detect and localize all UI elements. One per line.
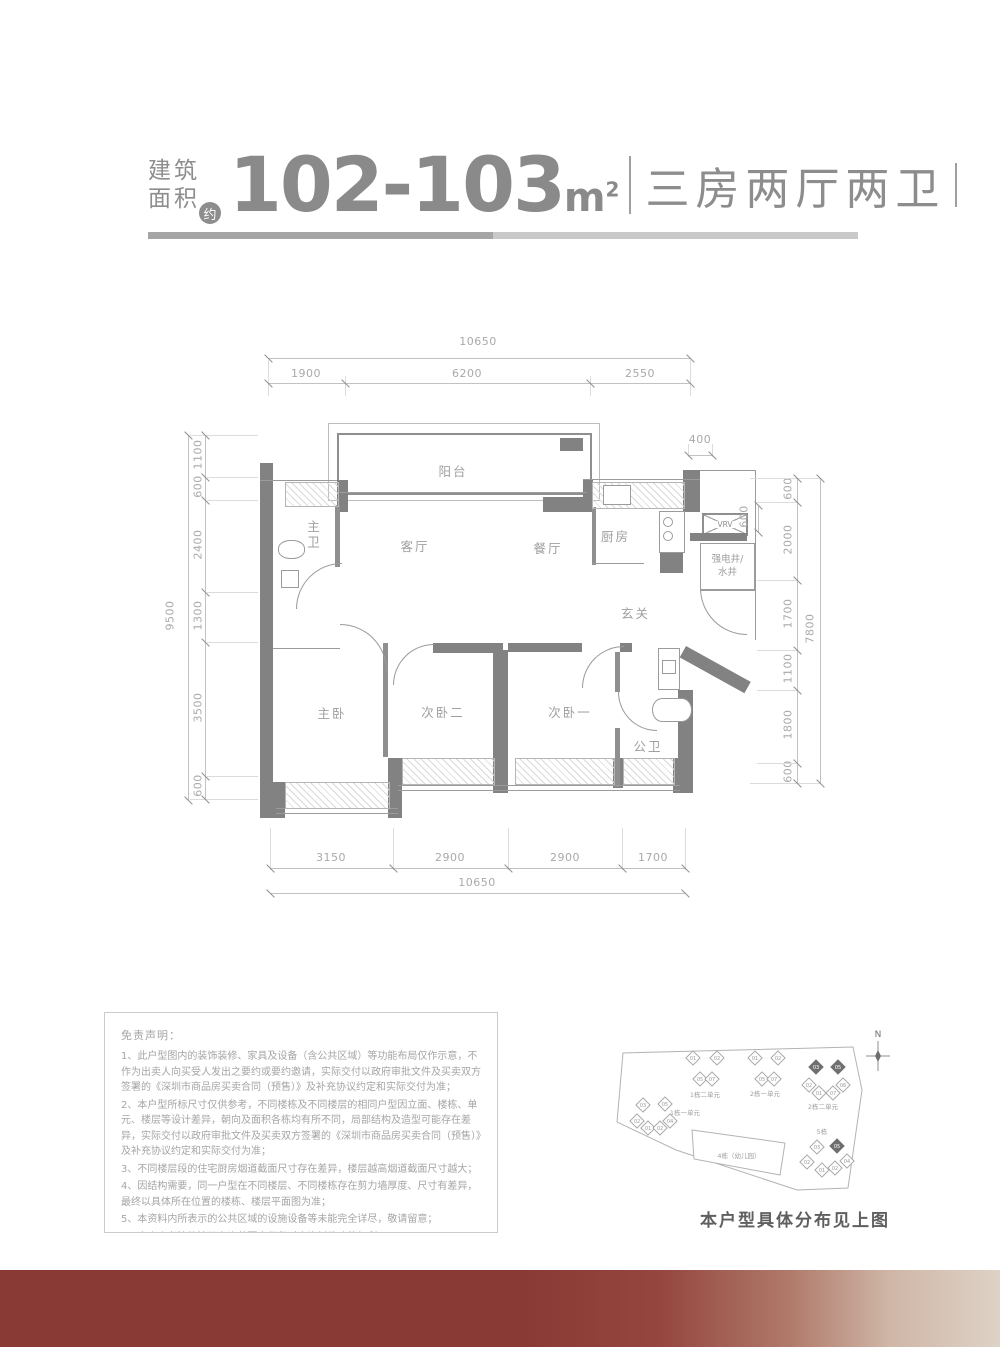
dimension-line [188,435,189,800]
extension-line [207,592,258,593]
window-hatch [623,758,675,785]
extension-line [207,642,258,643]
site-unit-number: 01 [819,1168,825,1174]
disclaimer-title: 免责声明： [121,1027,485,1043]
area-label-line1: 建筑 [148,157,200,185]
extension-line [393,828,394,870]
area-value: 102-103m2 [229,147,619,223]
interior-wall [335,505,340,567]
dim-top-1: 1900 [276,367,336,380]
site-unit-number: 04 [667,1119,673,1125]
dim-left-3: 2400 [192,515,205,575]
wall-line [340,492,587,493]
stove-burner [663,531,673,541]
disclaimer-box: 免责声明： 1、此户型图内的装饰装修、家具及设备（含公共区域）等功能布局仅作示意… [104,1012,498,1233]
north-label: N [875,1030,882,1040]
dim-right-total: 7800 [804,599,817,659]
site-unit-number: 07 [709,1077,715,1083]
bath-sink-basin [662,660,676,674]
approx-badge: 约 [199,202,221,224]
disclaimer-items: 1、此户型图内的装饰装修、家具及设备（含公共区域）等功能布局仅作示意，不作为出卖… [121,1049,485,1233]
dimension-line [268,358,690,359]
site-unit-number: 05 [662,1102,668,1108]
dimension-line [268,383,690,384]
extension-line [750,783,820,784]
site-unit-number: 05 [835,1065,841,1071]
site-unit-number: 01 [645,1126,651,1132]
extension-line [270,828,271,870]
window-hatch [402,758,495,785]
dim-bottom-4: 1700 [623,851,683,864]
dim-400: 400 [676,433,724,446]
site-plan-caption: 本户型具体分布见上图 [655,1206,935,1231]
wall [260,463,273,818]
dim-top-2: 6200 [437,367,497,380]
utility-shaft: 强电井/ 水井 [700,543,755,590]
wall-line [276,813,398,814]
site-unit-number: 05 [834,1144,840,1150]
room-label-bedroom2: 次卧二 [400,702,486,721]
site-unit-number: 07 [830,1091,836,1097]
dim-left-total: 9500 [164,586,177,646]
interior-wall [592,507,596,565]
wall-line [592,563,644,564]
interior-wall [615,728,620,787]
extension-line [690,360,691,396]
site-unit-number: 03 [813,1065,819,1071]
extension-line [757,690,797,691]
site-unit-number: 02 [775,1056,781,1062]
site-unit-number: 01 [816,1091,822,1097]
dim-top-total: 10650 [448,335,508,348]
extension-line [190,799,258,800]
disclaimer-item: 5、本资料内所表示的公共区域的设施设备等未能完全详尽，敬请留意； [121,1212,485,1228]
room-label-master-bed: 主卧 [292,703,372,722]
extension-line [757,763,797,764]
dim-bottom-2: 2900 [420,851,480,864]
extension-line [750,478,820,479]
building-4-label: 4栋（幼儿园） [717,1151,760,1160]
door-arc [700,588,747,635]
area-unit-m: m [564,175,606,221]
door-arc [582,646,624,688]
stove-burner [663,517,673,527]
site-unit-number: 02 [634,1119,640,1125]
dim-right-6: 600 [782,742,795,802]
site-plan: 4栋（幼儿园） N 010205071栋二单元010205072栋一单元0305… [615,1025,915,1215]
window-hatch [515,758,615,785]
dim-right-2: 2000 [782,510,795,570]
dim-bottom-total: 10650 [447,876,507,889]
wall-line [583,479,700,480]
dim-bottom-1: 3150 [301,851,361,864]
dimension-line [758,505,759,532]
site-cluster-label: 5栋 [817,1127,828,1136]
dim-left-2: 600 [192,457,205,517]
disclaimer-item: 6、出卖人在法律法规允许范围内保留对本资料修改的权利； [121,1230,485,1234]
wall-line [755,470,756,640]
site-cluster-label: 2栋二单元 [808,1102,839,1111]
bottom-accent-bar [0,1270,1000,1347]
disclaimer-item: 4、因结构需要，同一户型在不同楼层、不同楼栋存在剪力墙厚度、尺寸有差异，最终以具… [121,1179,485,1210]
dim-right-3: 1700 [782,584,795,644]
door-arc [296,563,342,609]
north-arrow: N [866,1030,890,1071]
room-label-bedroom1: 次卧一 [527,702,613,721]
dimension-line [688,455,712,456]
extension-line [207,477,258,478]
site-unit-number: 03 [814,1145,820,1151]
extension-line [268,360,269,396]
site-unit-number: 06 [840,1083,846,1089]
area-number: 102-103 [229,140,564,229]
floor-plan: VRV 强电井/ 水井 阳台 主卫 客厅 餐厅 厨房 玄关 主卧 次卧二 次卧一… [150,330,880,930]
room-label-master-bath: 主卫 [303,520,322,551]
dim-bottom-3: 2900 [535,851,595,864]
extension-line [757,650,797,651]
wall [560,438,583,451]
site-cluster-label: 1栋一单元 [670,1108,701,1117]
area-unit: m2 [564,175,620,221]
site-unit-number: 05 [759,1077,765,1083]
room-label-balcony: 阳台 [413,461,493,480]
site-unit-number: 03 [640,1103,646,1109]
door-arc [340,624,387,671]
extension-line [190,435,258,436]
disclaimer-item: 1、此户型图内的装饰装修、家具及设备（含公共区域）等功能布局仅作示意，不作为出卖… [121,1049,485,1096]
dimension-line [797,478,798,783]
window-hatch [285,782,390,809]
site-unit-number: 02 [714,1056,720,1062]
wall-line [273,648,340,649]
extension-line [622,828,623,870]
site-unit-number: 07 [771,1077,777,1083]
site-cluster-label: 1栋二单元 [690,1090,721,1099]
bath-sink [281,570,299,588]
utility-shaft-label-1: 强电井/ [701,553,754,566]
site-unit-number: 05 [697,1077,703,1083]
dim-top-3: 2550 [610,367,670,380]
header-separator-bar [629,156,631,214]
header-end-bar [955,163,957,207]
wall [683,470,700,512]
toilet [278,540,305,559]
extension-line [207,776,258,777]
wall [673,758,693,793]
layout-type: 三房两厅两卫 [645,153,945,217]
dimension-line [270,893,685,894]
disclaimer-item: 2、本户型所标尺寸仅供参考，不同楼栋及不同楼层的相同户型因立面、楼栋、单元、楼层… [121,1098,485,1160]
header-divider [148,232,858,239]
site-unit-number: 02 [804,1160,810,1166]
site-unit-number: 04 [844,1159,850,1165]
room-label-public-bath: 公卫 [618,736,678,755]
door-arc [393,644,434,685]
header: 建筑 面积 约 102-103m2 三房两厅两卫 [148,142,957,228]
disclaimer-item: 3、不同楼层段的住宅厨房烟道截面尺寸存在差异，楼层越高烟道截面尺寸越大； [121,1162,485,1178]
room-label-dining: 餐厅 [508,538,588,557]
extension-line [685,828,686,870]
dim-left-6: 600 [192,756,205,816]
wall-line [260,480,337,481]
dimension-line [820,478,821,783]
toilet [652,698,692,722]
kitchen-sink [603,485,631,505]
extension-line [345,376,346,396]
site-unit-number: 02 [657,1126,663,1132]
dimension-line [205,435,206,799]
room-label-living: 客厅 [375,536,455,555]
extension-line [207,500,258,501]
room-label-foyer: 玄关 [598,603,673,622]
dim-left-5: 3500 [192,678,205,738]
dim-left-4: 1300 [192,586,205,646]
site-cluster-label: 2栋一单元 [750,1089,781,1098]
window-hatch [285,482,339,507]
area-unit-sup: 2 [606,178,620,202]
extension-line [757,580,797,581]
extension-line [590,376,591,396]
wall [493,650,508,793]
extension-line [508,828,509,870]
site-unit-number: 02 [806,1083,812,1089]
area-label-line2: 面积 [148,185,200,213]
wall [508,643,582,652]
wall-line [700,470,756,471]
extension-line [757,502,797,503]
site-unit-number: 02 [832,1166,838,1172]
utility-shaft-label-2: 水井 [701,566,754,579]
diagonal-wall [680,646,751,693]
area-label: 建筑 面积 [148,157,200,213]
vrv-label: VRV [716,521,733,529]
site-unit-number: 01 [752,1056,758,1062]
wall [660,550,683,573]
wall-line [398,790,680,791]
wall [690,533,747,541]
room-label-kitchen: 厨房 [578,526,653,545]
wall [388,758,402,818]
site-unit-number: 01 [690,1056,696,1062]
wall-line [398,785,680,786]
